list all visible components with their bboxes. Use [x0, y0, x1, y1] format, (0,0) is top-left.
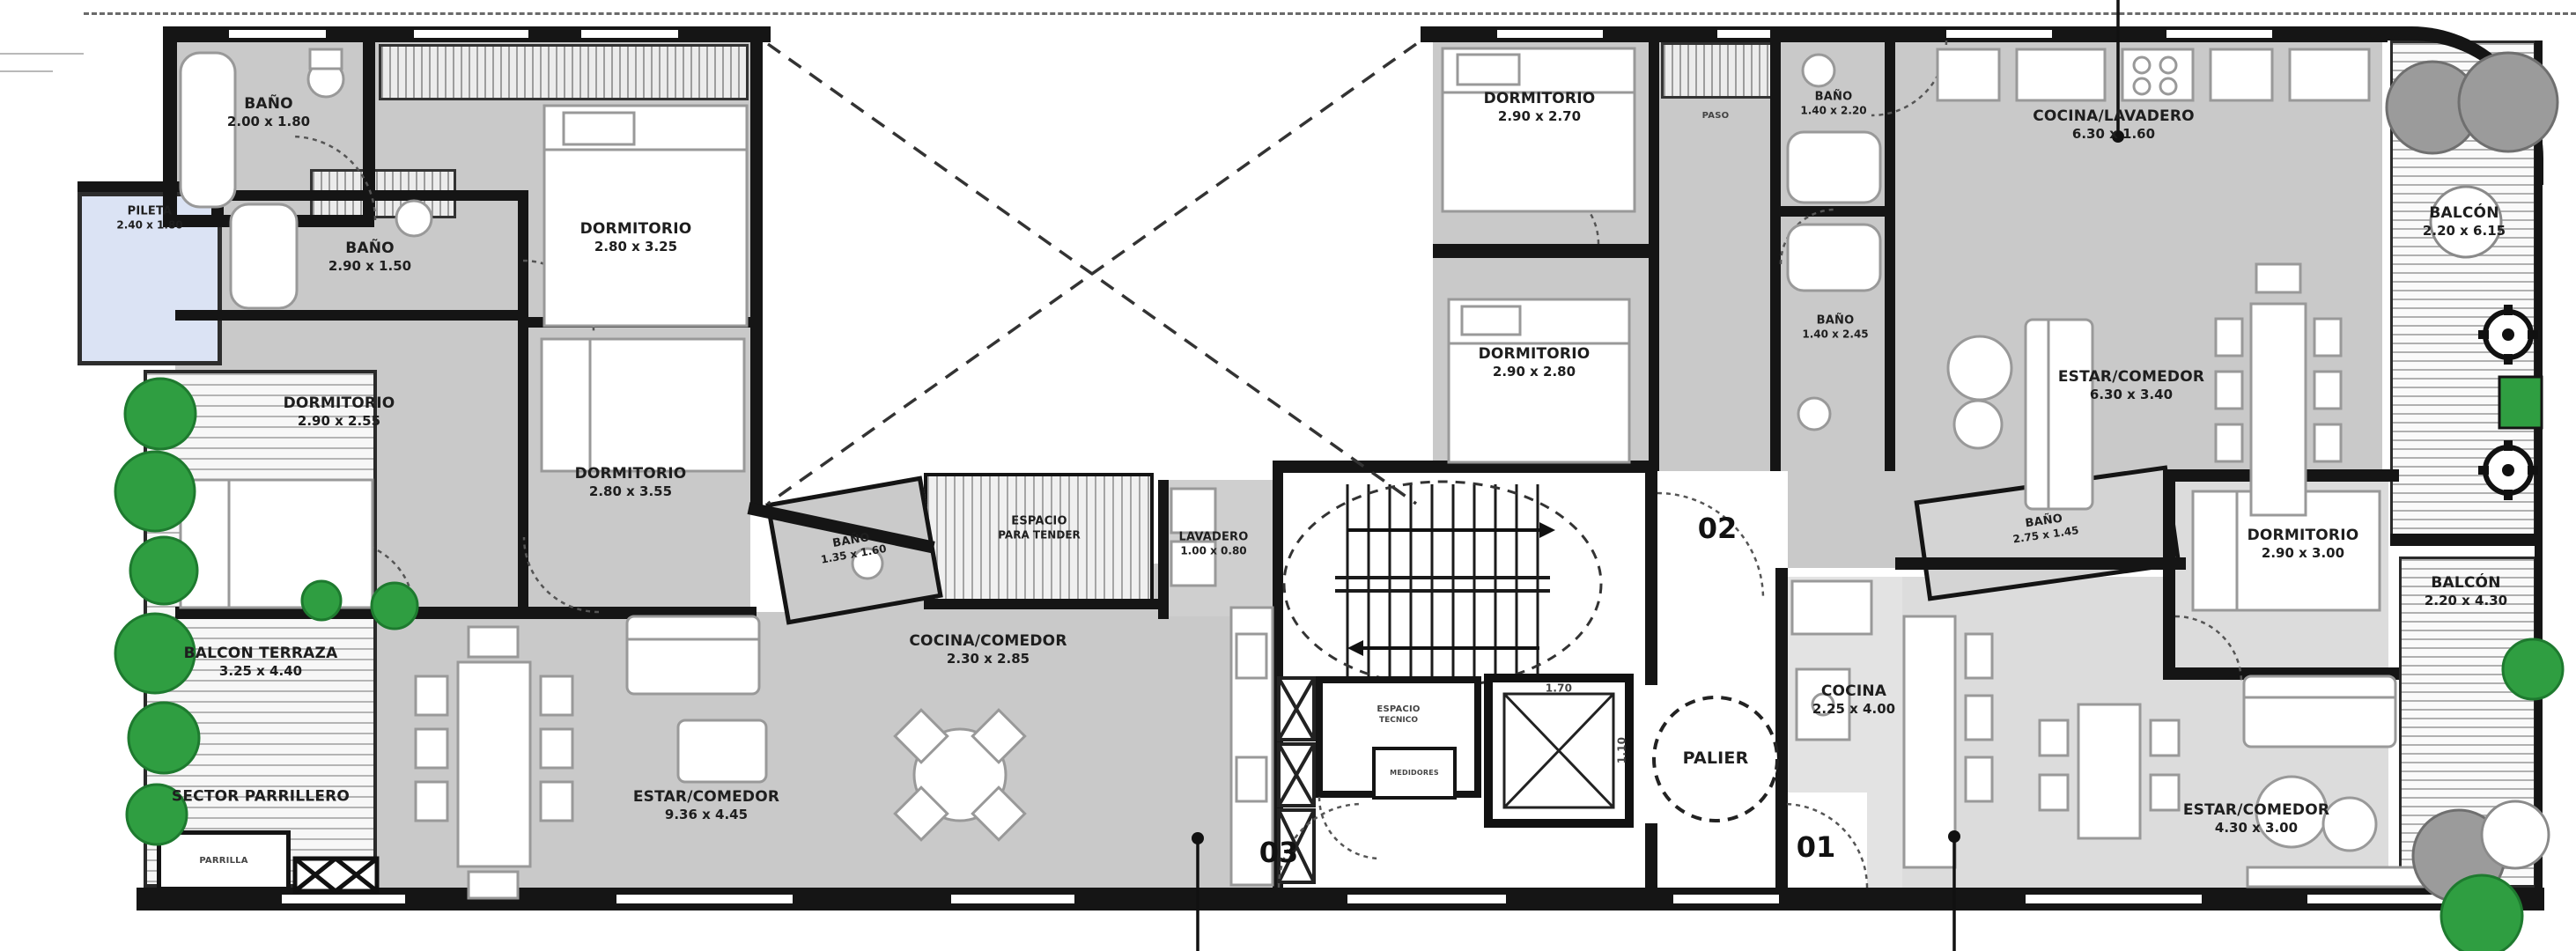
sofa-u02: [1948, 320, 2093, 509]
trees-right: [2387, 53, 2563, 951]
label-balcon-u01: BALCÓN2.20 x 4.30: [2425, 574, 2507, 609]
label-sector-parrillero: SECTOR PARRILLERO: [172, 787, 350, 806]
label-palier: PALIER: [1683, 748, 1749, 770]
label-banio-b-u02: BAÑO1.40 x 2.45: [1802, 313, 1868, 341]
bed: [181, 480, 373, 608]
unit-badge-01: 01: [1797, 830, 1836, 864]
label-parrilla: PARRILLA: [199, 856, 247, 867]
cabinet: [1792, 581, 1871, 634]
dining-table-u02: [2216, 264, 2341, 515]
label-espacio-tecnico: ESPACIOTECNICO: [1377, 704, 1420, 726]
label-banio-mid-u03: BAÑO2.90 x 1.50: [328, 240, 411, 275]
void-cross: [768, 44, 1416, 504]
label-banio-top-u03: BAÑO2.00 x 1.80: [227, 95, 310, 130]
label-lavadero: LAVADERO1.00 x 0.80: [1178, 530, 1248, 557]
sofa-u03: [627, 616, 766, 782]
label-dorm-a-u03: DORMITORIO2.80 x 3.25: [580, 220, 692, 255]
bathtub: [1788, 132, 1880, 291]
label-elevator-width: 1.70: [1546, 682, 1572, 696]
bed: [1443, 48, 1635, 211]
label-balcon-terraza: BALCON TERRAZA3.25 x 4.40: [184, 645, 338, 680]
unit-badge-02: 02: [1698, 512, 1738, 545]
label-banio-a-u02: BAÑO1.40 x 2.20: [1800, 90, 1866, 117]
toilet: [853, 55, 1834, 579]
label-elevator-depth: 1.10: [1616, 737, 1629, 763]
label-pileta: PILETA2.40 x 1.80: [116, 204, 182, 232]
label-estar-u03: ESTAR/COMEDOR9.36 x 4.45: [633, 788, 779, 823]
label-balcon-u02: BALCÓN2.20 x 6.15: [2423, 204, 2506, 240]
label-paso: PASO: [1702, 111, 1730, 122]
bed: [544, 106, 747, 326]
unit-badge-03: 03: [1259, 836, 1299, 869]
round-table-u03: [895, 710, 1024, 839]
toilet: [308, 49, 432, 236]
label-medidores: MEDIDORES: [1390, 769, 1439, 778]
label-cocina-u01: COCINA2.25 x 4.00: [1812, 682, 1895, 718]
planter-green: [2499, 377, 2542, 428]
elevator: [1488, 678, 1629, 823]
bbq-grill: [295, 859, 377, 891]
label-dorm-b-u03: DORMITORIO2.90 x 2.55: [284, 394, 395, 430]
label-dorm-b-u02: DORMITORIO2.90 x 2.80: [1479, 345, 1591, 380]
bed: [542, 339, 744, 471]
appliances-u02: [1938, 49, 2369, 100]
label-estar-u01: ESTAR/COMEDOR4.30 x 3.00: [2183, 801, 2329, 837]
dining-table-u03: [416, 627, 572, 898]
kitchen-island-u01: [1904, 616, 1992, 867]
leader-lines: [1192, 0, 2124, 951]
label-dorm-u01: DORMITORIO2.90 x 3.00: [2248, 527, 2359, 562]
trees-left: [115, 379, 417, 844]
floor-plan: BAÑO2.00 x 1.80 PILETA2.40 x 1.80 BAÑO2.…: [0, 0, 2576, 951]
label-cocina-lavadero-u02: COCINA/LAVADERO6.30 x 1.60: [2033, 107, 2195, 143]
bathtub: [181, 53, 297, 308]
dining-table-u01: [2040, 704, 2179, 838]
label-estar-u02: ESTAR/COMEDOR6.30 x 3.40: [2058, 368, 2204, 403]
label-tender: ESPACIOPARA TENDER: [998, 514, 1081, 542]
bed: [1449, 299, 1629, 462]
stairs: [1284, 482, 1601, 686]
label-dorm-c-u03: DORMITORIO2.80 x 3.55: [575, 465, 687, 500]
label-dorm-a-u02: DORMITORIO2.90 x 2.70: [1484, 90, 1596, 125]
label-cocina-comedor-u03: COCINA/COMEDOR2.30 x 2.85: [909, 632, 1067, 667]
sofa-u01: [2244, 676, 2428, 887]
